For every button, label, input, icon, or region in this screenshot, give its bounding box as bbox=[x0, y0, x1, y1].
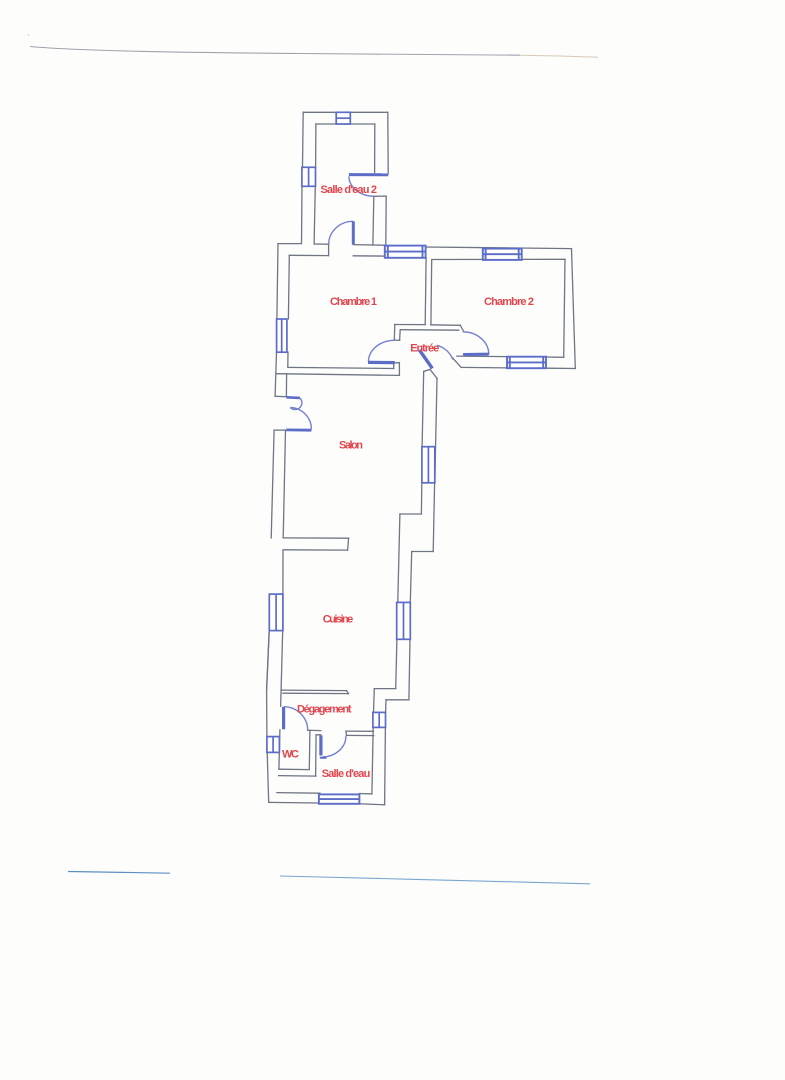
svg-text:Entrée: Entrée bbox=[410, 342, 439, 354]
svg-text:Salle d'eau: Salle d'eau bbox=[322, 768, 371, 780]
svg-text:WC: WC bbox=[282, 749, 299, 761]
svg-text:Salle d'eau 2: Salle d'eau 2 bbox=[321, 184, 378, 196]
svg-text:Chambre 1: Chambre 1 bbox=[330, 296, 377, 308]
svg-text:Cuisine: Cuisine bbox=[323, 614, 354, 626]
svg-text:Chambre 2: Chambre 2 bbox=[484, 296, 534, 308]
svg-text:Salon: Salon bbox=[339, 440, 363, 452]
svg-text:Dégagement: Dégagement bbox=[297, 704, 352, 716]
